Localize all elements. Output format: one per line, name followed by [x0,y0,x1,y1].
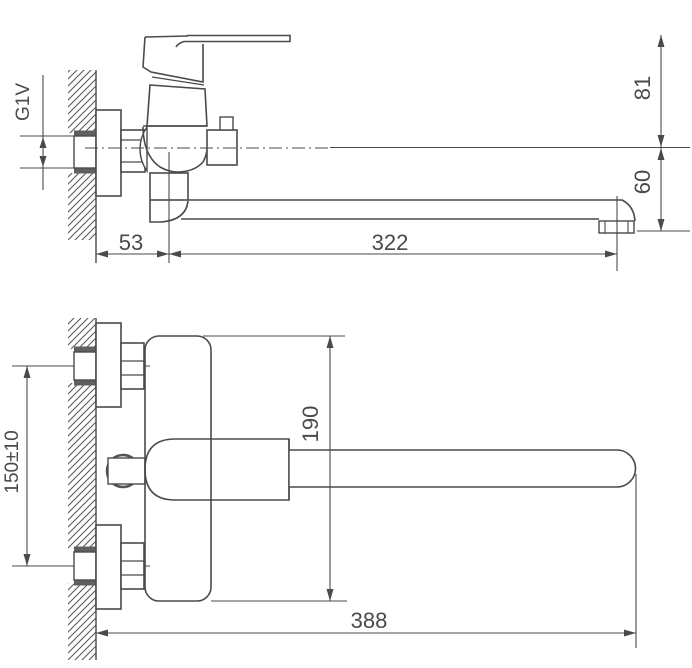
front-view-upper-escutcheon [96,323,121,407]
technical-drawing-canvas: G1V 53 322 81 60 [0,0,692,668]
dim-label-reach: 322 [372,230,409,255]
front-view-spout-base [145,439,289,500]
dim-label-spout-drop: 60 [630,170,655,194]
front-view-spout-tube [289,450,636,487]
side-view-inlet-pipe [74,131,96,174]
side-view-valve-block [207,117,237,165]
handle-hood [143,36,203,82]
front-view-lower-hex-nut [121,543,144,589]
dim-label-body-height: 190 [298,406,323,443]
faucet-drawing-svg: G1V 53 322 81 60 [0,0,692,668]
side-view: G1V 53 322 81 60 [13,35,690,271]
dim-label-total-reach: 388 [351,608,388,633]
front-view-upper-inlet [74,347,96,386]
handle-collar [147,85,207,126]
dim-label-inlet-spacing: 150±10 [2,430,23,493]
handle-lever [176,36,290,48]
dim-thread: G1V [13,75,74,190]
faucet-handle [143,36,290,127]
side-view-valve-body [143,126,207,172]
dim-label-thread: G1V [13,83,34,121]
front-view-upper-hex-nut [121,343,144,389]
side-view-escutcheon [96,110,121,196]
dim-heights-right: 81 60 [630,35,690,231]
front-view-lower-escutcheon [96,525,121,609]
dim-inlet-spacing: 150±10 [2,366,31,566]
dim-label-offset: 53 [119,230,143,255]
dim-label-upper-height: 81 [630,76,655,100]
dim-offset-and-reach: 53 322 [96,230,617,258]
front-view-outlet-knob [107,455,145,487]
front-view: 150±10 190 388 [2,318,636,660]
front-view-lower-inlet [74,547,96,586]
side-view-spout [181,200,635,233]
